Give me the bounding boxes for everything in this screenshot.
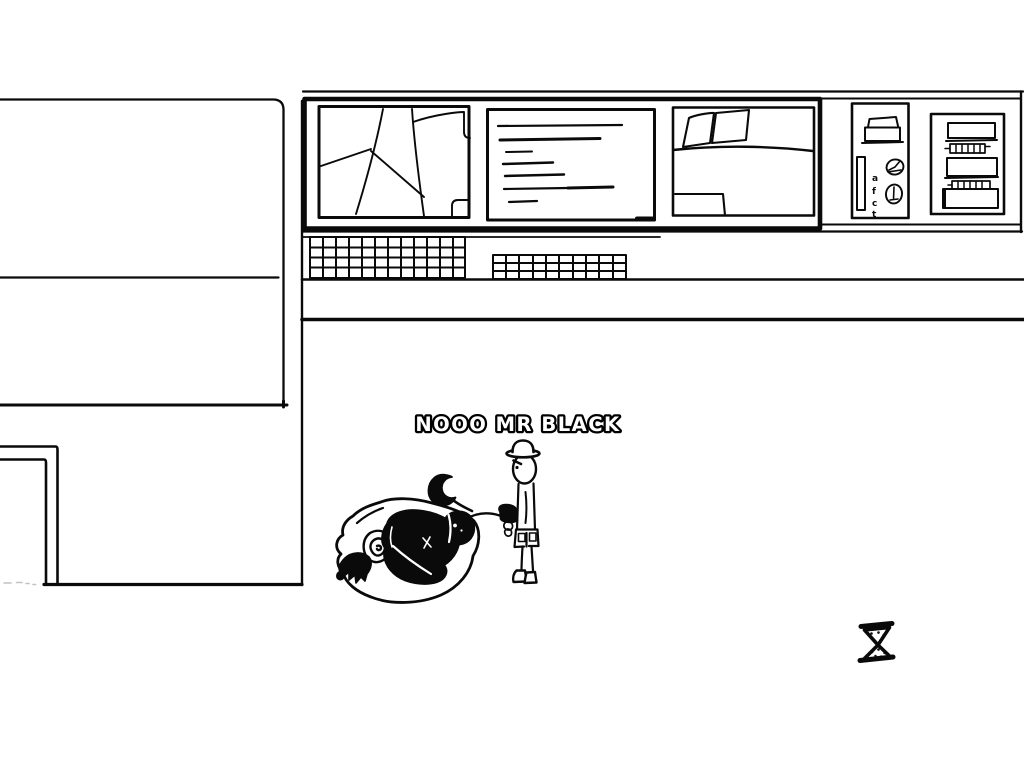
hand-scribble bbox=[504, 522, 513, 536]
hourglass-icon bbox=[860, 624, 893, 661]
panel-glyph-4: t bbox=[872, 210, 877, 220]
boot-right bbox=[525, 572, 537, 583]
box-lid bbox=[868, 117, 898, 127]
pillow-left bbox=[683, 113, 714, 147]
mr-black-creature[interactable] bbox=[337, 475, 479, 603]
wall-panel-controls[interactable]: a f c t bbox=[852, 104, 909, 221]
creature-eye bbox=[453, 524, 457, 528]
left-building-top-edge bbox=[0, 100, 284, 404]
hourglass-top-bulb bbox=[865, 628, 890, 646]
pillow-right bbox=[712, 110, 749, 143]
clock-icon bbox=[885, 158, 905, 177]
pocket-right bbox=[530, 533, 537, 541]
claw-thumb bbox=[337, 572, 344, 580]
hourglass-bottom-bar bbox=[860, 657, 893, 661]
player-character[interactable] bbox=[499, 441, 540, 584]
left-building bbox=[0, 100, 287, 408]
crescent-ear bbox=[428, 475, 455, 506]
hat-dome bbox=[513, 441, 534, 453]
eye bbox=[515, 466, 518, 469]
gauge-icon bbox=[885, 183, 903, 204]
panel-glyph-1: a bbox=[872, 174, 878, 184]
arm bbox=[526, 492, 527, 523]
creature-nose-dot bbox=[460, 529, 462, 531]
speech-text: NOOO MR BLACK bbox=[415, 413, 620, 436]
panel-glyph-3: c bbox=[872, 199, 877, 209]
wall-picture-abstract[interactable] bbox=[319, 107, 470, 218]
alley-door-frame[interactable] bbox=[0, 447, 58, 584]
hand-pouch bbox=[499, 505, 518, 523]
panel-glyph-2: f bbox=[872, 187, 876, 197]
floor-scuff-marks bbox=[4, 583, 36, 585]
pocket-left bbox=[519, 534, 526, 542]
wall-picture-bed[interactable] bbox=[673, 108, 814, 216]
wall-panel-shelves[interactable] bbox=[931, 114, 1004, 214]
vent-grate-right bbox=[493, 255, 626, 279]
wall-picture-document[interactable] bbox=[488, 110, 655, 221]
side-bar bbox=[857, 157, 865, 210]
game-scene: a f c t NOOO MR BLACK bbox=[0, 0, 1024, 768]
left-building-bottom-line bbox=[0, 401, 287, 407]
box-body bbox=[865, 128, 900, 142]
vent-grate-left bbox=[310, 237, 465, 278]
legs bbox=[522, 547, 534, 572]
